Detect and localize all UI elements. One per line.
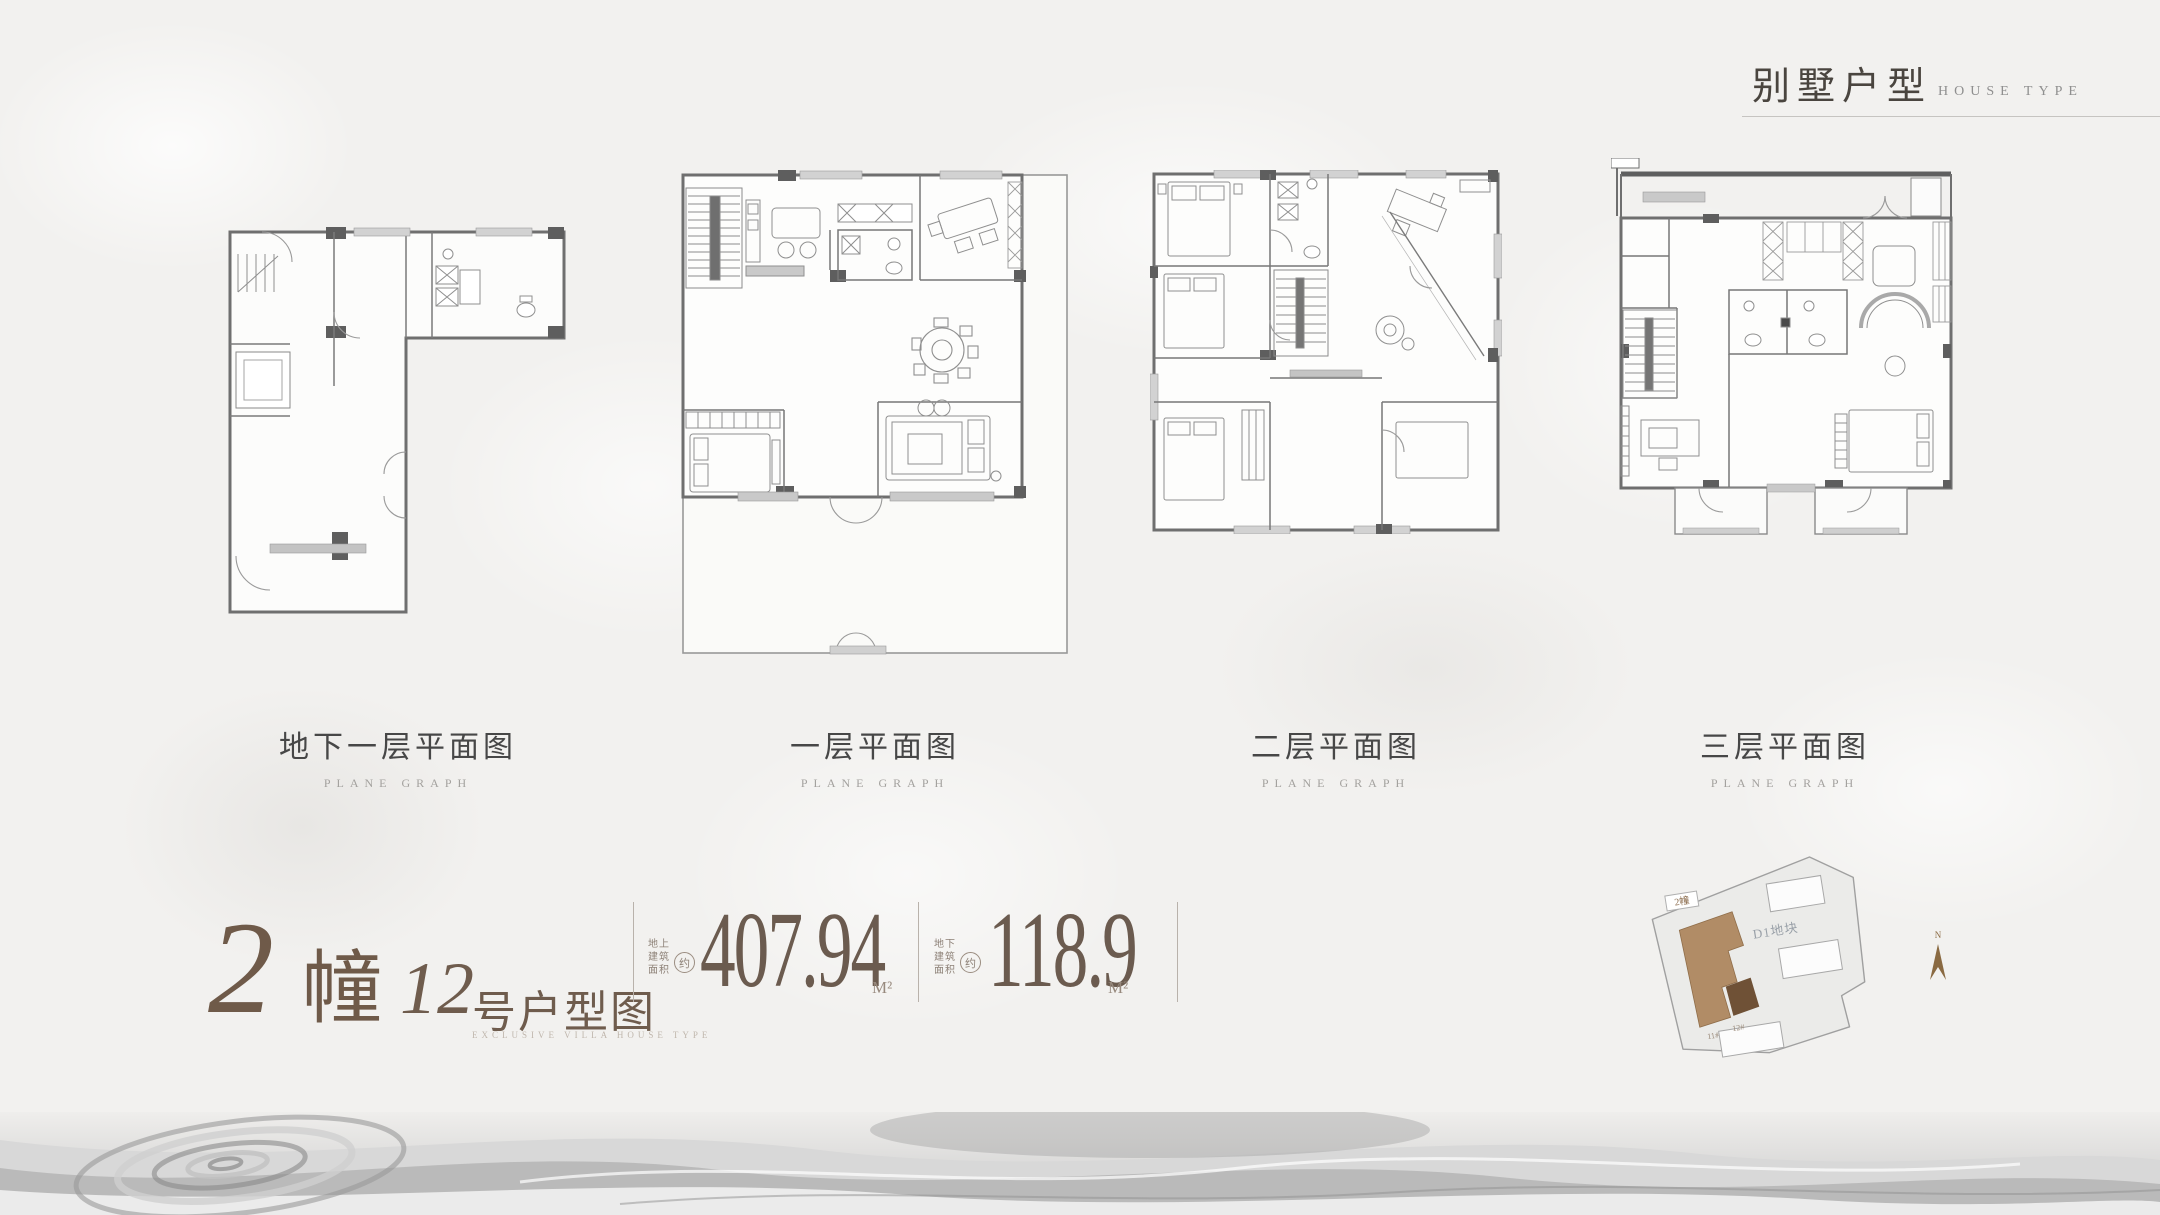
floorplan-second-floor-drawing <box>1150 170 1502 534</box>
unit-sub-english: EXCLUSIVE VILLA HOUSE TYPE <box>472 1030 711 1040</box>
area1-label: 地上 建筑 面积 <box>648 938 670 977</box>
building-number: 2 <box>208 902 274 1034</box>
balconies <box>1675 484 1907 534</box>
unit-tag-11: 11# <box>1707 1030 1720 1041</box>
building-unit-char: 幢 <box>302 950 382 1030</box>
unit-number: 12 <box>400 952 474 1026</box>
area1-unit: M² <box>872 978 892 998</box>
divider <box>633 902 634 1002</box>
page-subtitle: HOUSE TYPE <box>1938 84 2083 100</box>
caption-third-floor: 三层平面图 PLANE GRAPH <box>1615 722 1955 791</box>
north-arrow-icon: N <box>1930 930 1946 980</box>
header-rule <box>1742 116 2160 117</box>
caption-first-floor-en: PLANE GRAPH <box>705 776 1045 791</box>
window-sill <box>270 544 366 553</box>
caption-third-floor-en: PLANE GRAPH <box>1615 776 1955 791</box>
caption-third-floor-cn: 三层平面图 <box>1615 722 1955 766</box>
brochure-page: 别墅户型 HOUSE TYPE <box>0 0 2160 1215</box>
area2-label: 地下 建筑 面积 <box>934 938 956 977</box>
caption-second-floor: 二层平面图 PLANE GRAPH <box>1166 722 1506 791</box>
divider <box>918 902 919 1002</box>
caption-first-floor: 一层平面图 PLANE GRAPH <box>705 722 1045 791</box>
caption-second-floor-en: PLANE GRAPH <box>1166 776 1506 791</box>
area2-unit: M² <box>1108 978 1128 998</box>
site-plan: 2幢 D1地块 11# 12# N <box>1630 848 1960 1076</box>
caption-second-floor-cn: 二层平面图 <box>1166 722 1506 766</box>
decorative-wave <box>0 1112 2160 1215</box>
area2-approx-badge: 约 <box>960 952 981 973</box>
floorplan-basement-drawing <box>226 226 570 616</box>
area1-approx-badge: 约 <box>674 952 695 973</box>
floorplan-first-floor-drawing <box>680 170 1072 658</box>
caption-basement-cn: 地下一层平面图 <box>228 722 568 766</box>
caption-first-floor-cn: 一层平面图 <box>705 722 1045 766</box>
unit-tag-12: 12# <box>1732 1022 1745 1033</box>
area1-value: 407.94 <box>700 905 884 997</box>
north-label: N <box>1935 930 1942 940</box>
caption-basement: 地下一层平面图 PLANE GRAPH <box>228 722 568 791</box>
caption-basement-en: PLANE GRAPH <box>228 776 568 791</box>
divider <box>1177 902 1178 1002</box>
floorplan-third-floor-drawing <box>1611 158 1959 558</box>
page-title: 别墅户型 <box>1752 55 1932 110</box>
